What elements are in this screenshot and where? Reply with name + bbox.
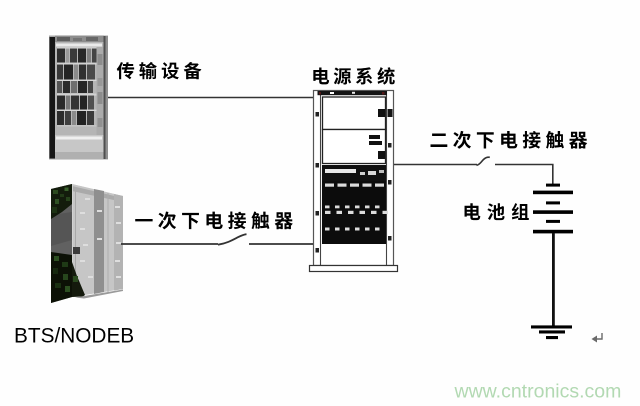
svg-text:BTS/NODEB: BTS/NODEB [14,325,134,348]
svg-text:www.cntronics.com: www.cntronics.com [454,381,622,403]
